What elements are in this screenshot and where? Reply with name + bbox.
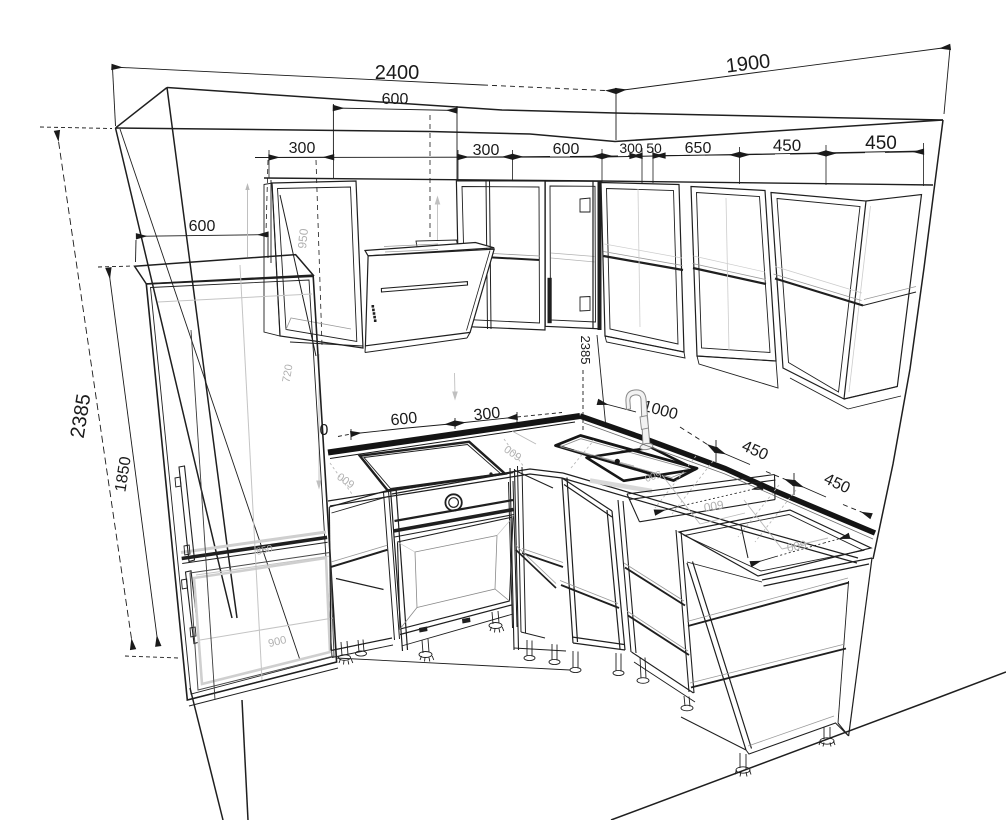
svg-text:600: 600 [553,141,580,158]
svg-text:300: 300 [473,405,501,425]
svg-text:2400: 2400 [375,62,420,84]
svg-text:300: 300 [473,142,500,159]
svg-text:2385: 2385 [578,336,593,365]
svg-text:950: 950 [295,228,311,250]
svg-text:450: 450 [773,136,801,155]
svg-text:650: 650 [685,140,712,157]
svg-text:600: 600 [382,91,409,108]
svg-text:450: 450 [865,133,897,154]
svg-text:300: 300 [619,140,643,156]
svg-text:600: 600 [189,218,216,235]
svg-text:50: 50 [646,140,662,156]
svg-text:300: 300 [289,140,316,157]
svg-text:600: 600 [390,410,418,430]
svg-text:0: 0 [320,422,329,439]
